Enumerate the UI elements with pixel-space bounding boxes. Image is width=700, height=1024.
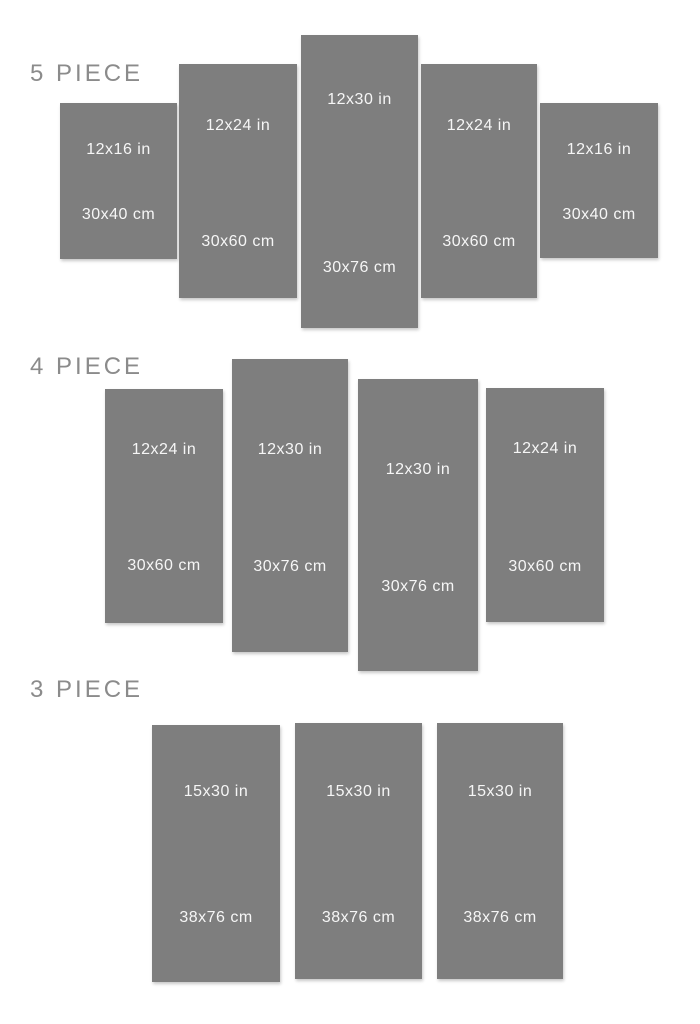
canvas-panel: 15x30 in 38x76 cm: [152, 725, 280, 982]
panel-size-cm: 38x76 cm: [295, 909, 422, 927]
panel-size-inches: 12x30 in: [301, 91, 418, 109]
panel-size-cm: 30x60 cm: [421, 233, 537, 251]
panel-size-cm: 30x60 cm: [105, 557, 223, 575]
panel-size-inches: 12x16 in: [540, 141, 658, 159]
canvas-panel: 12x30 in 30x76 cm: [232, 359, 348, 652]
panel-size-cm: 30x76 cm: [301, 259, 418, 277]
canvas-panel: 15x30 in 38x76 cm: [437, 723, 563, 979]
canvas-panel: 12x24 in 30x60 cm: [421, 64, 537, 298]
panel-size-cm: 38x76 cm: [152, 909, 280, 927]
panel-size-inches: 12x24 in: [421, 117, 537, 135]
panel-size-inches: 12x16 in: [60, 141, 177, 159]
section-label-5-piece: 5 PIECE: [30, 62, 143, 86]
canvas-panel: 12x24 in 30x60 cm: [486, 388, 604, 622]
panel-size-inches: 12x30 in: [232, 441, 348, 459]
canvas-panel: 15x30 in 38x76 cm: [295, 723, 422, 979]
panel-size-cm: 30x60 cm: [179, 233, 297, 251]
canvas-panel: 12x24 in 30x60 cm: [179, 64, 297, 298]
panel-size-cm: 30x76 cm: [232, 558, 348, 576]
panel-size-cm: 30x60 cm: [486, 558, 604, 576]
panel-size-inches: 12x30 in: [358, 461, 478, 479]
canvas-panel: 12x16 in 30x40 cm: [60, 103, 177, 259]
panel-size-inches: 15x30 in: [437, 783, 563, 801]
canvas-panel: 12x30 in 30x76 cm: [301, 35, 418, 328]
panel-size-inches: 12x24 in: [179, 117, 297, 135]
panel-size-inches: 15x30 in: [152, 783, 280, 801]
panel-size-cm: 30x40 cm: [60, 206, 177, 224]
canvas-panel: 12x30 in 30x76 cm: [358, 379, 478, 671]
section-label-3-piece: 3 PIECE: [30, 678, 143, 702]
panel-size-cm: 30x76 cm: [358, 578, 478, 596]
size-chart: 5 PIECE 12x16 in 30x40 cm 12x24 in 30x60…: [0, 0, 700, 1024]
panel-size-cm: 30x40 cm: [540, 206, 658, 224]
panel-size-inches: 15x30 in: [295, 783, 422, 801]
section-label-4-piece: 4 PIECE: [30, 355, 143, 379]
panel-size-inches: 12x24 in: [486, 440, 604, 458]
panel-size-inches: 12x24 in: [105, 441, 223, 459]
panel-size-cm: 38x76 cm: [437, 909, 563, 927]
canvas-panel: 12x24 in 30x60 cm: [105, 389, 223, 623]
canvas-panel: 12x16 in 30x40 cm: [540, 103, 658, 258]
